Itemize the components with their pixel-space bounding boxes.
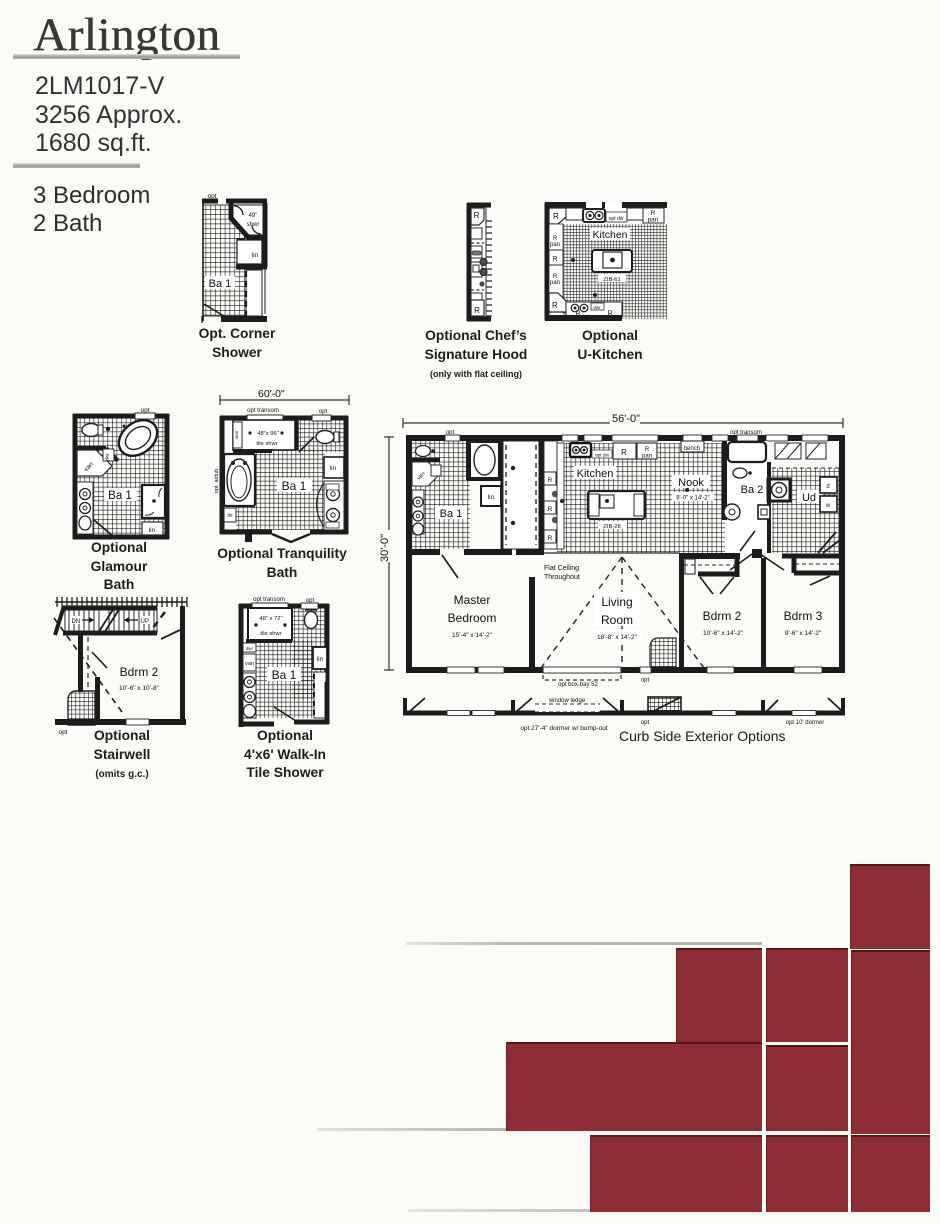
svg-text:Bedroom: Bedroom — [448, 611, 497, 625]
svg-text:Throughout: Throughout — [544, 574, 580, 581]
svg-text:Ba 2: Ba 2 — [741, 484, 764, 496]
svg-text:shwr: shwr — [247, 222, 260, 228]
svg-text:pan: pan — [648, 217, 659, 224]
svg-text:tile shwr: tile shwr — [256, 441, 277, 447]
svg-text:Living: Living — [601, 595, 632, 609]
svg-text:dwr: dwr — [246, 646, 254, 651]
svg-text:R: R — [548, 477, 553, 484]
svg-text:Ud: Ud — [802, 492, 816, 504]
svg-text:Ba 1: Ba 1 — [282, 479, 307, 493]
svg-text:opt 27'-4" dormer w/ bump-out: opt 27'-4" dormer w/ bump-out — [520, 725, 608, 732]
svg-text:R: R — [553, 212, 559, 221]
svg-text:Master: Master — [454, 593, 491, 607]
svg-text:ZIB-28: ZIB-28 — [603, 524, 620, 530]
svg-text:R: R — [552, 301, 558, 310]
svg-text:opt: opt — [319, 409, 328, 415]
svg-text:bench: bench — [684, 446, 700, 452]
svg-text:opt dw: opt dw — [595, 453, 610, 459]
svg-text:10'-6" x 10'-8": 10'-6" x 10'-8" — [119, 685, 160, 692]
svg-text:10'-6" x 14'-2": 10'-6" x 14'-2" — [703, 630, 744, 637]
svg-text:R: R — [474, 211, 480, 220]
svg-text:lin: lin — [252, 252, 259, 259]
svg-text:opt box-bay 52: opt box-bay 52 — [558, 682, 598, 688]
svg-text:tile shwr: tile shwr — [260, 631, 281, 637]
svg-text:R: R — [548, 506, 553, 513]
svg-text:R: R — [474, 306, 480, 315]
svg-text:8'-0" x 14'-2": 8'-0" x 14'-2" — [676, 496, 710, 502]
svg-text:60'-0": 60'-0" — [258, 388, 285, 400]
svg-text:Ba 1: Ba 1 — [209, 278, 232, 290]
svg-text:Ba 1: Ba 1 — [108, 490, 132, 502]
svg-text:Bdrm 3: Bdrm 3 — [784, 609, 823, 623]
svg-text:9'-6" x 14'-2": 9'-6" x 14'-2" — [785, 630, 822, 637]
svg-text:opt: opt — [641, 720, 650, 726]
svg-text:18'-8" x 14'-2": 18'-8" x 14'-2" — [597, 634, 638, 641]
svg-text:48"x 96": 48"x 96" — [257, 431, 279, 437]
svg-text:opt 10' dormer: opt 10' dormer — [786, 720, 825, 726]
svg-text:lin: lin — [317, 656, 324, 663]
svg-text:Bdrm 2: Bdrm 2 — [120, 665, 159, 679]
svg-text:R: R — [552, 256, 557, 263]
svg-text:opt dw: opt dw — [609, 216, 624, 222]
svg-text:R: R — [621, 448, 627, 457]
svg-text:ZIB-61: ZIB-61 — [603, 277, 620, 283]
svg-text:30'-0": 30'-0" — [379, 534, 391, 562]
svg-text:lin: lin — [330, 465, 337, 472]
svg-text:w: w — [825, 503, 831, 509]
svg-text:R: R — [548, 535, 553, 542]
svg-text:lin: lin — [227, 513, 232, 519]
svg-text:Nook: Nook — [678, 477, 704, 489]
svg-text:seat: seat — [234, 430, 239, 439]
svg-text:48" x 72": 48" x 72" — [259, 616, 282, 622]
svg-text:Bdrm 2: Bdrm 2 — [703, 609, 742, 623]
svg-text:UP: UP — [141, 619, 149, 625]
svg-text:window ledge: window ledge — [548, 698, 586, 704]
svg-text:pan: pan — [642, 454, 652, 460]
svg-text:dwr: dwr — [105, 453, 110, 461]
svg-text:Flat Ceiling: Flat Ceiling — [544, 565, 579, 572]
svg-text:15'-4" x 14'-2": 15'-4" x 14'-2" — [452, 632, 493, 639]
svg-text:Kitchen: Kitchen — [577, 468, 614, 480]
svg-text:opt. airtub: opt. airtub — [214, 469, 220, 493]
svg-text:lin: lin — [488, 494, 495, 501]
svg-text:van: van — [245, 661, 254, 667]
svg-text:Room: Room — [601, 613, 633, 627]
svg-text:opt transom: opt transom — [247, 408, 279, 414]
svg-text:56'-0": 56'-0" — [612, 413, 640, 425]
svg-text:lin: lin — [149, 527, 156, 534]
svg-text:opt: opt — [641, 678, 650, 684]
svg-text:DN: DN — [72, 619, 81, 625]
svg-text:Ba 1: Ba 1 — [272, 668, 297, 682]
svg-text:opt transom: opt transom — [253, 597, 285, 603]
svg-text:pan: pan — [550, 280, 560, 286]
svg-text:d: d — [826, 484, 829, 490]
svg-text:pan: pan — [550, 242, 560, 248]
svg-text:R: R — [645, 447, 650, 453]
svg-text:Kitchen: Kitchen — [592, 229, 627, 241]
svg-text:Ba 1: Ba 1 — [440, 508, 463, 520]
svg-text:dwr: dwr — [593, 305, 601, 310]
svg-text:49": 49" — [249, 213, 258, 219]
